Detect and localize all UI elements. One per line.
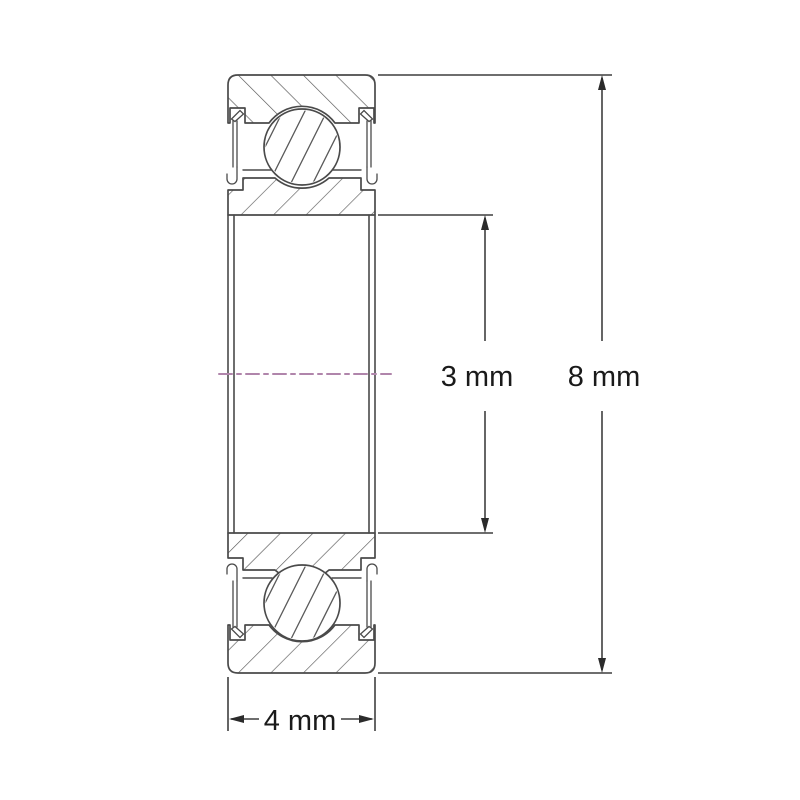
shield-hook-right-top (367, 167, 377, 184)
bearing-technical-drawing: 3 mm 8 mm 4 mm (0, 0, 800, 800)
arrow-up-icon (598, 75, 606, 90)
ball-top (264, 109, 340, 185)
shield-left-bottom (227, 564, 237, 627)
arrow-up-icon (481, 215, 489, 230)
arrow-left-icon (229, 715, 244, 723)
shield-tab-right-bottom (361, 627, 373, 638)
shield-right-top (367, 121, 377, 184)
shield-hook-left-top (227, 167, 237, 184)
bottom-half-section (227, 533, 377, 673)
bearing-section-view (219, 75, 391, 673)
bearing-diagram-canvas: 3 mm 8 mm 4 mm (0, 0, 800, 800)
shield-left-top (227, 121, 237, 184)
top-half-section (227, 75, 377, 215)
ball-bottom (264, 565, 340, 641)
width-dimension-label: 4 mm (264, 705, 337, 737)
shield-hook-left-bottom (227, 564, 237, 581)
arrow-right-icon (359, 715, 374, 723)
dimension-width: 4 mm (229, 705, 374, 737)
arrow-down-icon (598, 658, 606, 673)
bore-dimension-label: 3 mm (441, 361, 514, 393)
shield-tab-left-top (232, 111, 244, 122)
arrow-down-icon (481, 518, 489, 533)
shield-tab-left-bottom (232, 627, 244, 638)
shield-tab-right-top (361, 111, 373, 122)
shield-hook-right-bottom (367, 564, 377, 581)
outer-diameter-dimension-label: 8 mm (568, 361, 641, 393)
shield-right-bottom (367, 564, 377, 627)
dimension-bore: 3 mm (441, 215, 514, 533)
dimension-outer-diameter: 8 mm (568, 75, 641, 673)
